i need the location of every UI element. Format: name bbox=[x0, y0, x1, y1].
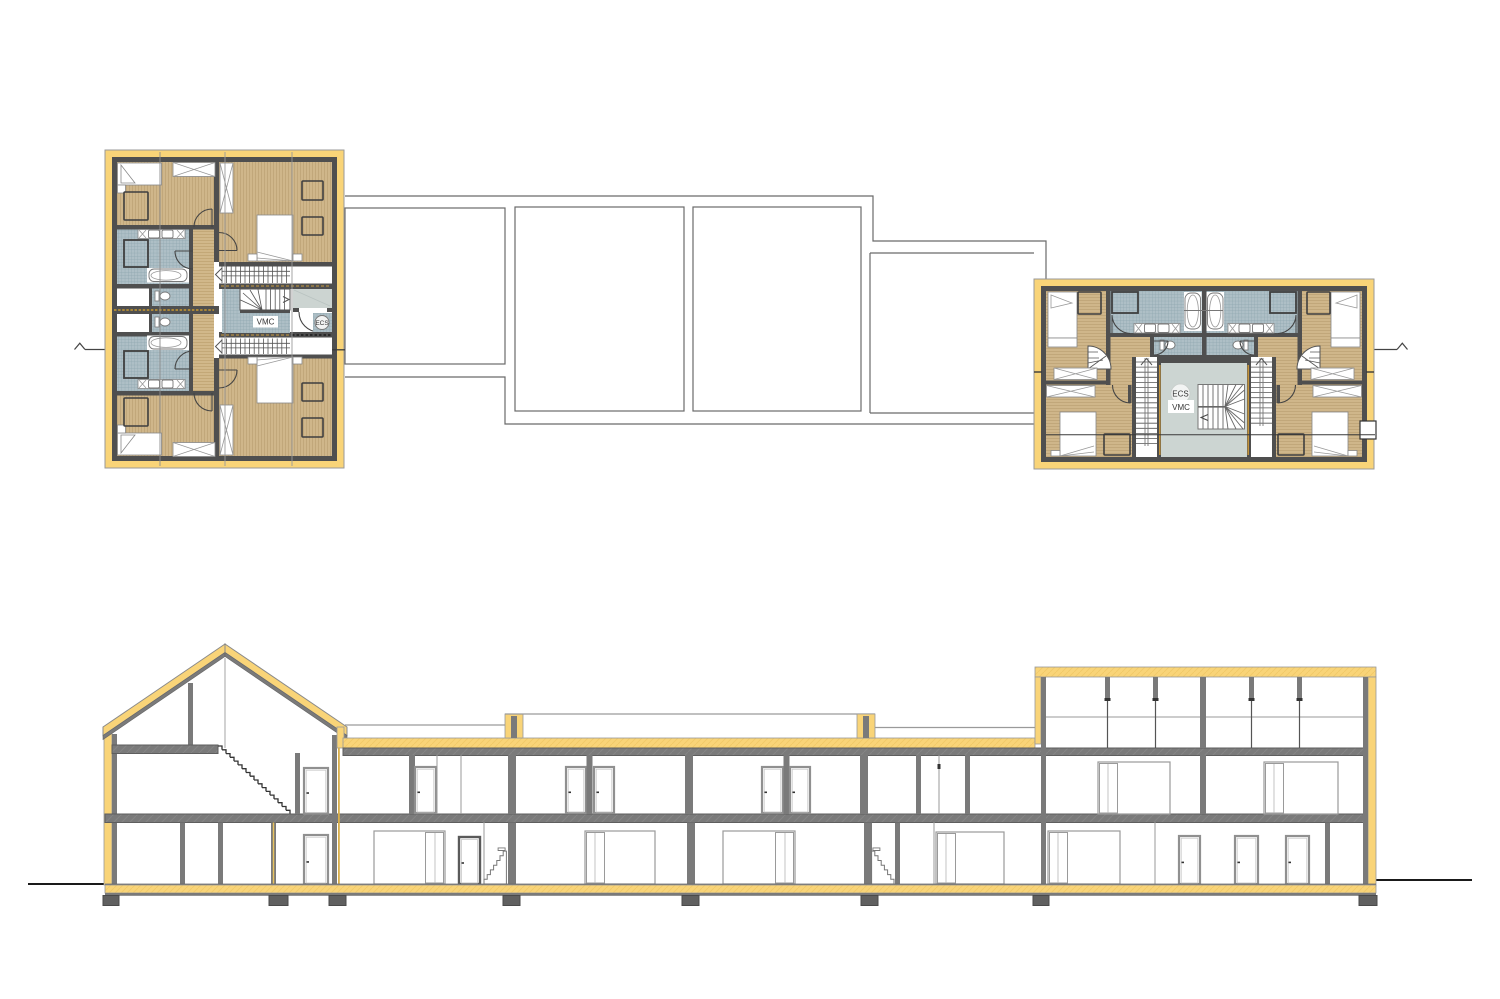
svg-text:VMC: VMC bbox=[257, 318, 275, 327]
svg-text:VMC: VMC bbox=[1172, 403, 1190, 412]
svg-text:ECS: ECS bbox=[315, 320, 329, 327]
svg-text:ECS: ECS bbox=[1172, 390, 1188, 399]
